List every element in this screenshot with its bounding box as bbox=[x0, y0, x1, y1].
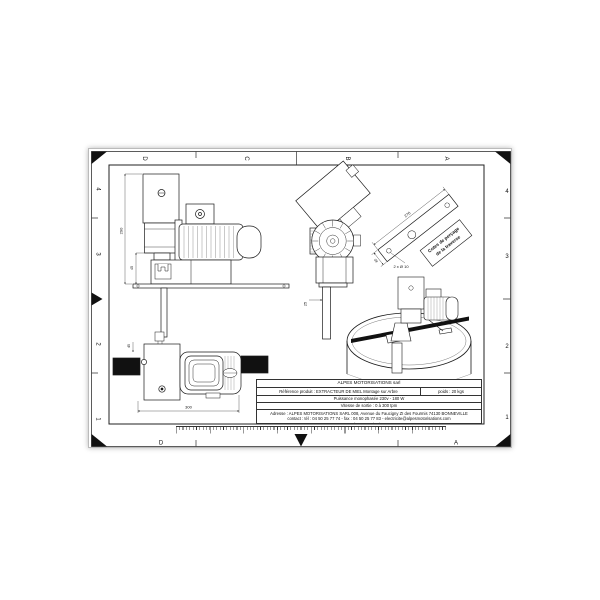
reference-row: Référence produit : EXTRACTEUR DE MIEL M… bbox=[257, 388, 481, 396]
dim-front-offset-label: 45 bbox=[130, 266, 134, 270]
bottom-center-mark bbox=[295, 434, 308, 447]
zone-letter-top: B bbox=[344, 156, 350, 160]
zone-number-left: 2 bbox=[95, 342, 101, 346]
traverse-detail-view: 270 40 2 x Ø 10 Cotes de perçage de la t… bbox=[362, 185, 471, 269]
zone-number-left: 1 bbox=[95, 417, 101, 421]
front-view: 290 45 bbox=[119, 174, 290, 337]
speed-spec: Vitesse de sortie : 0 à 300 tpm bbox=[257, 403, 481, 410]
perspective-view bbox=[347, 277, 471, 387]
power-spec: Puissance monophasée 230v - 180 W bbox=[257, 396, 481, 403]
bottom-ruler bbox=[176, 426, 446, 435]
address-block: Adresse : ALPES MOTORISATIONS SARL 008, … bbox=[257, 410, 481, 425]
traverse-bar-right bbox=[241, 356, 268, 373]
drawing-sheet: D C B A D A 4 3 2 1 4 3 2 1 bbox=[88, 148, 512, 448]
zone-letter-top: C bbox=[243, 156, 249, 161]
dim-traverse-width-label: 40 bbox=[373, 258, 379, 264]
product-reference: Référence produit : EXTRACTEUR DE MIEL M… bbox=[257, 388, 421, 395]
side-view: 25 bbox=[296, 158, 382, 339]
plan-view: 300 45 bbox=[113, 332, 268, 413]
zone-number-left: 4 bbox=[95, 187, 101, 191]
left-center-mark bbox=[92, 293, 103, 306]
dim-front-height-label: 290 bbox=[119, 227, 124, 234]
dim-shaft-label: 25 bbox=[304, 302, 308, 306]
zone-number-right: 2 bbox=[505, 344, 509, 350]
traverse-bar-left bbox=[113, 358, 140, 375]
dim-plan-offset-label: 45 bbox=[127, 344, 131, 348]
zone-number-right: 4 bbox=[505, 189, 509, 195]
zone-letter-bottom: A bbox=[454, 441, 458, 447]
weight-value: poids : 20 kgs bbox=[421, 388, 481, 395]
dim-plan-width-label: 300 bbox=[185, 405, 192, 410]
page: D C B A D A 4 3 2 1 4 3 2 1 bbox=[0, 0, 600, 600]
zone-number-left: 3 bbox=[95, 252, 101, 256]
company-name: ALPES MOTORISATIONS sarl bbox=[257, 380, 481, 388]
zone-letter-top: A bbox=[443, 156, 449, 160]
zone-number-right: 1 bbox=[505, 415, 509, 421]
holes-label: 2 x Ø 10 bbox=[393, 264, 409, 269]
zone-letter-top: D bbox=[141, 156, 147, 161]
dim-traverse-length-label: 270 bbox=[403, 210, 412, 219]
zone-letter-bottom: D bbox=[159, 441, 164, 447]
website-line: www.alpesmotorisations.com bbox=[257, 422, 481, 424]
dimension-45-front bbox=[136, 253, 153, 284]
title-block: ALPES MOTORISATIONS sarl Référence produ… bbox=[256, 379, 482, 424]
zone-number-right: 3 bbox=[505, 254, 509, 260]
